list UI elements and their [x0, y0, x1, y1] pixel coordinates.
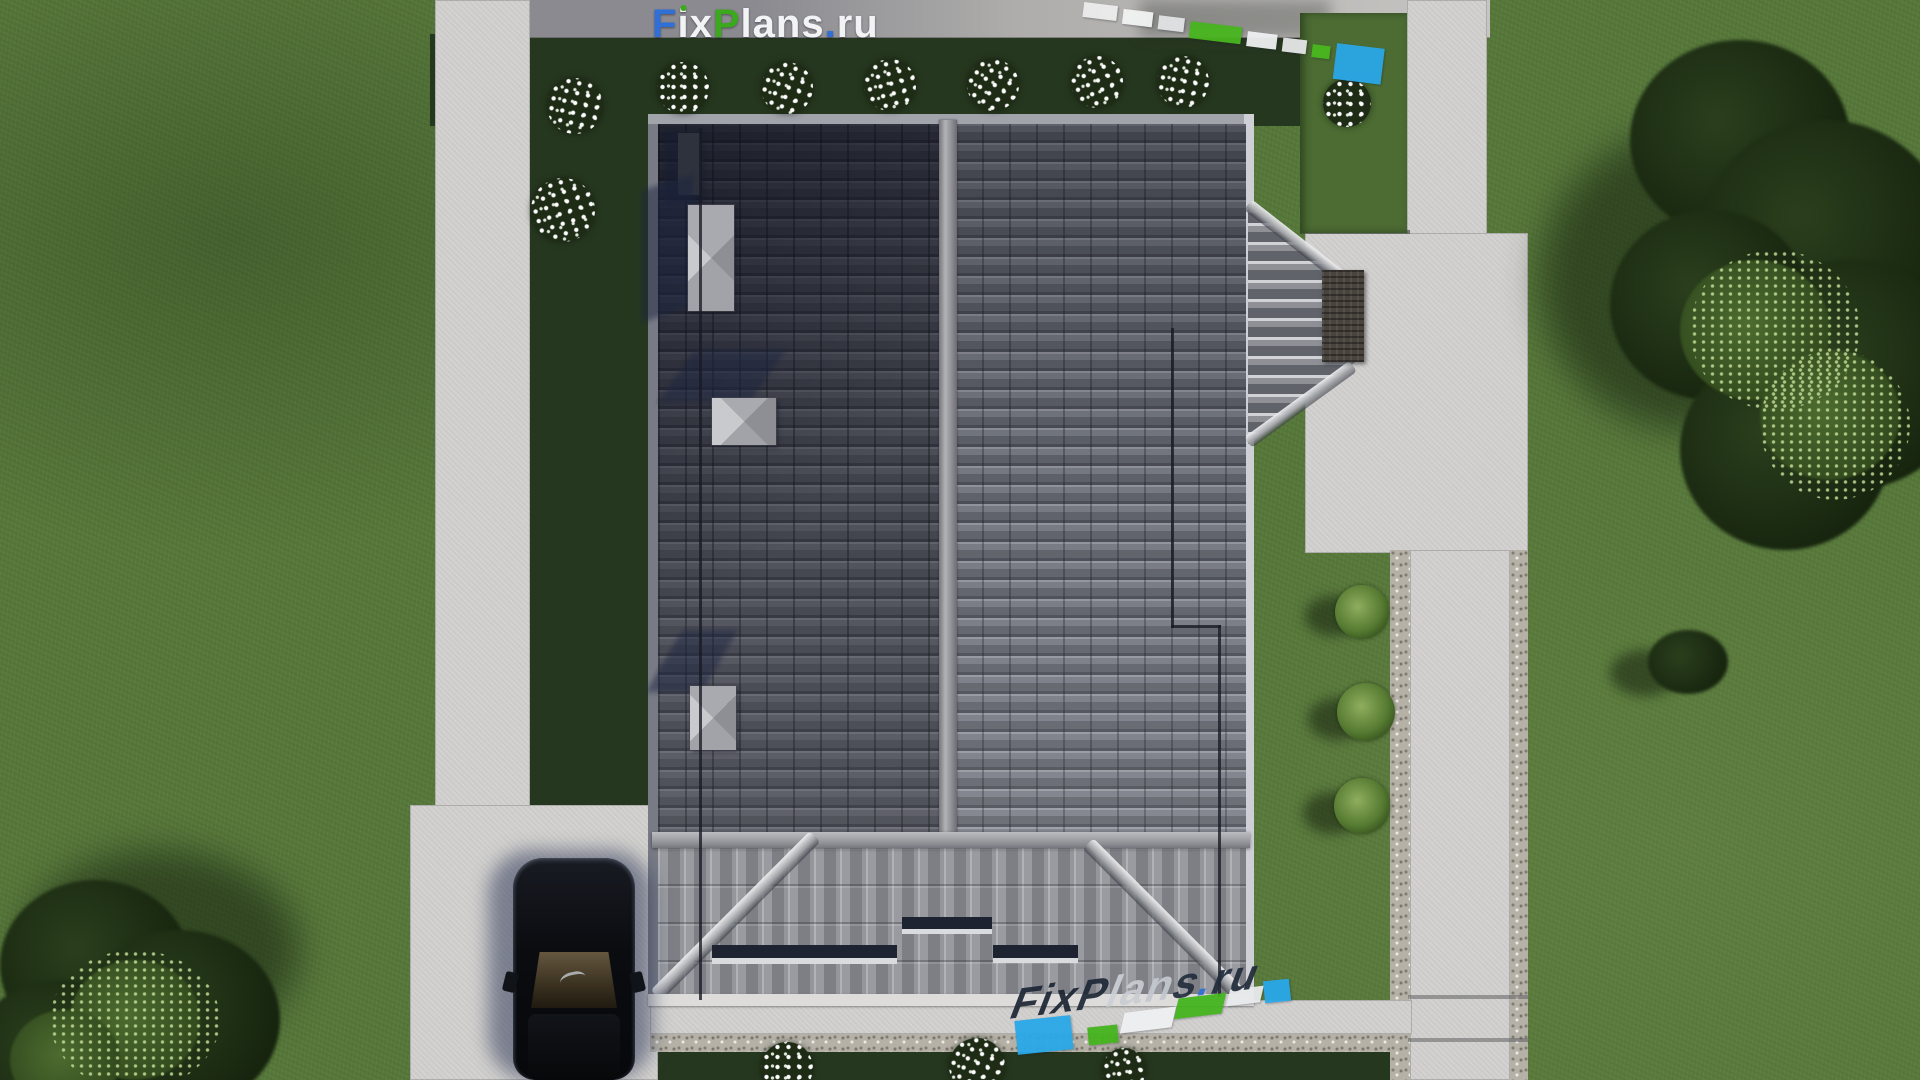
- dormer-2: [712, 398, 776, 445]
- wm-block-7: [1311, 44, 1330, 59]
- gravel-edge-right-path-east: [1510, 550, 1528, 1080]
- logo-letter: P: [713, 4, 741, 44]
- logo-letter: l: [741, 4, 753, 44]
- roof-main-ridge: [939, 120, 957, 846]
- skylight-slot-1: [712, 945, 897, 958]
- logo-letter: F: [652, 4, 677, 44]
- wm-block-8: [1333, 43, 1385, 85]
- logo-letter: u: [853, 4, 878, 44]
- wing-chimney: [1322, 270, 1364, 362]
- skylight-sill-3: [993, 958, 1078, 963]
- wm-bottom-accent-blue-small: [1263, 979, 1291, 1004]
- dormer-3: [690, 686, 736, 750]
- tree-bottom-left-speckle: [50, 950, 220, 1080]
- path-left: [435, 0, 530, 812]
- lightning-conductor-jog: [1171, 625, 1221, 628]
- skylight-slot-2: [902, 917, 992, 929]
- logo-letter: r: [837, 4, 854, 44]
- lightning-conductor-east-b: [1218, 625, 1221, 997]
- flower-bush-pocket: [1323, 79, 1371, 127]
- roof-lower-ridge: [652, 832, 1250, 848]
- bush-e2: [1337, 683, 1395, 741]
- logo-letter: n: [776, 4, 801, 44]
- logo-letter-dot: [680, 5, 687, 11]
- logo-letter: x: [690, 4, 713, 44]
- site-plan-render: FixPlans.ru FixPlans.ru: [0, 0, 1920, 1080]
- skylight-slot-3: [993, 945, 1078, 958]
- lightning-conductor-east-a: [1171, 328, 1174, 628]
- skylight-sill-1: [712, 958, 897, 964]
- path-right-top: [1407, 0, 1487, 235]
- skylight-sill-2: [902, 929, 992, 934]
- path-joint-2: [1408, 1038, 1528, 1042]
- roof-plane-east: [955, 124, 1246, 846]
- lightning-conductor-west: [699, 128, 702, 1000]
- bush-e1: [1335, 585, 1389, 639]
- logo-letter: a: [753, 4, 776, 44]
- wm-block-6: [1282, 37, 1308, 54]
- bush-se: [1648, 630, 1728, 694]
- watermark-top-center: FixPlans.ru: [652, 4, 879, 44]
- path-right: [1410, 550, 1510, 1080]
- path-joint-1: [1408, 995, 1528, 999]
- dormer-shadow-1: [642, 174, 694, 323]
- tree-top-right-speckle-2: [1760, 350, 1910, 500]
- logo-letter: .: [825, 4, 837, 44]
- flower-bush-n1: [657, 62, 709, 114]
- logo-letter: s: [801, 4, 824, 44]
- logo-letter: i: [677, 4, 689, 44]
- bush-e3: [1334, 778, 1390, 834]
- wm-block-3: [1158, 15, 1186, 32]
- car-roof: [528, 1014, 620, 1080]
- dormer-1: [688, 205, 734, 311]
- wm-bottom-accent-green-1: [1087, 1024, 1119, 1045]
